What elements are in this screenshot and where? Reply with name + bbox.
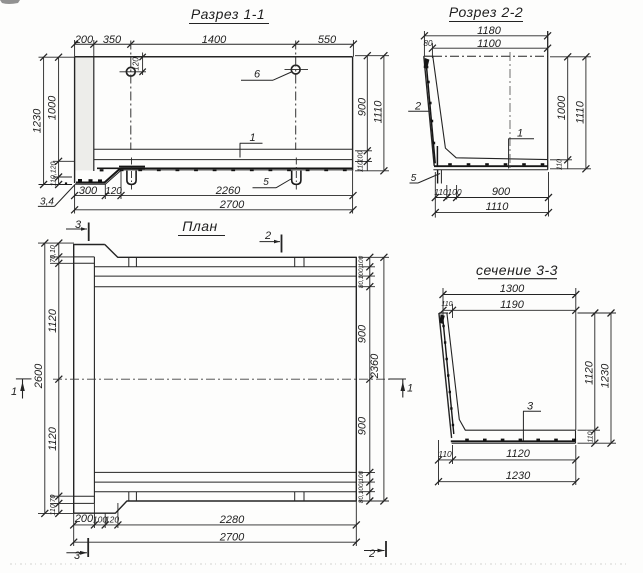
svg-text:1230: 1230 [32,108,44,133]
svg-text:100: 100 [447,187,461,197]
svg-text:1: 1 [407,383,413,395]
svg-text:2260: 2260 [215,185,241,197]
svg-text:6: 6 [254,69,261,81]
svg-text:3: 3 [527,401,534,413]
svg-text:900: 900 [357,416,369,435]
svg-text:2700: 2700 [219,199,245,211]
svg-text:80,100,100: 80,100,100 [358,470,365,503]
svg-text:1190: 1190 [500,299,525,311]
svg-text:1000: 1000 [556,95,568,120]
svg-text:1: 1 [11,386,17,398]
svg-text:1000: 1000 [47,95,59,120]
svg-text:1400: 1400 [202,34,227,46]
svg-text:1: 1 [249,132,255,144]
svg-text:5: 5 [263,177,269,188]
svg-text:900: 900 [357,324,369,343]
svg-text:2280: 2280 [219,514,245,526]
svg-text:2600: 2600 [33,363,45,389]
svg-text:1120: 1120 [584,360,596,385]
svg-text:1110: 1110 [486,201,510,213]
svg-text:110: 110 [438,449,452,459]
svg-text:110: 110 [557,159,564,170]
svg-text:1110: 1110 [373,100,385,124]
svg-text:900: 900 [492,186,511,198]
svg-text:1100: 1100 [477,38,502,50]
svg-text:120: 120 [105,186,122,197]
svg-text:5: 5 [411,173,417,184]
svg-text:110,120: 110,120 [51,162,58,187]
svg-text:1110: 1110 [575,100,587,124]
svg-text:120: 120 [105,515,119,525]
svg-text:2: 2 [414,101,421,113]
svg-text:3: 3 [74,550,81,562]
svg-text:900: 900 [357,97,369,116]
svg-text:План: План [182,218,218,234]
svg-text:200: 200 [74,513,94,525]
svg-text:1120: 1120 [47,426,59,451]
svg-text:Розрез 2-2: Розрез 2-2 [449,4,523,20]
svg-text:110: 110 [358,161,365,172]
svg-text:80,100,100: 80,100,100 [358,255,365,288]
svg-text:80: 80 [424,39,433,48]
svg-text:100: 100 [358,151,365,163]
svg-text:1300: 1300 [500,283,525,295]
svg-text:2: 2 [368,548,375,560]
svg-text:1230: 1230 [506,470,531,482]
svg-text:70,10: 70,10 [50,245,57,263]
svg-text:300: 300 [79,185,98,197]
svg-text:1120: 1120 [47,308,59,333]
svg-text:200: 200 [74,34,94,46]
svg-text:110: 110 [588,431,595,442]
svg-text:2360: 2360 [369,353,381,379]
svg-text:Разрез 1-1: Разрез 1-1 [191,6,265,22]
svg-text:2: 2 [264,230,271,242]
svg-text:1: 1 [517,128,523,140]
svg-text:110,70: 110,70 [50,494,57,515]
svg-text:3,4: 3,4 [40,197,54,208]
svg-text:110: 110 [441,301,452,308]
svg-text:1120: 1120 [506,448,531,460]
svg-text:1180: 1180 [477,25,502,37]
svg-text:2700: 2700 [219,532,245,544]
svg-text:110: 110 [434,187,448,197]
svg-text:120: 120 [132,57,141,71]
svg-text:1230: 1230 [600,363,612,388]
svg-text:сечение 3-3: сечение 3-3 [476,262,558,278]
svg-text:350: 350 [103,34,122,46]
svg-text:550: 550 [318,34,337,46]
